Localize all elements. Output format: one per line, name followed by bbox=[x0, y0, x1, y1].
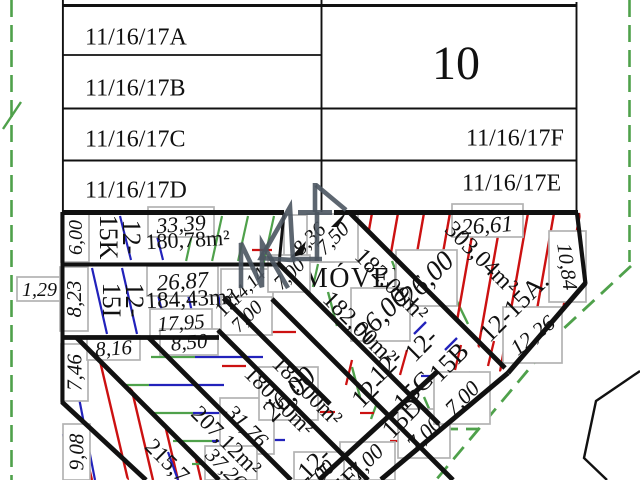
svg-text:1,29: 1,29 bbox=[22, 279, 57, 301]
svg-text:26,87: 26,87 bbox=[156, 267, 211, 296]
svg-text:6,00: 6,00 bbox=[65, 220, 87, 255]
svg-text:9,08: 9,08 bbox=[65, 433, 89, 470]
svg-text:26,61: 26,61 bbox=[460, 211, 513, 240]
svg-text:8,23: 8,23 bbox=[62, 281, 86, 318]
svg-text:15I: 15I bbox=[97, 283, 126, 318]
svg-text:11/16/17B: 11/16/17B bbox=[85, 76, 185, 102]
svg-text:33,39: 33,39 bbox=[154, 210, 206, 238]
svg-text:11/16/17A: 11/16/17A bbox=[85, 25, 187, 51]
svg-text:7,46: 7,46 bbox=[63, 354, 87, 391]
svg-text:11/16/17D: 11/16/17D bbox=[85, 178, 187, 204]
svg-text:15K: 15K bbox=[94, 215, 123, 260]
svg-text:11/16/17C: 11/16/17C bbox=[85, 127, 185, 153]
svg-text:10: 10 bbox=[432, 37, 480, 90]
svg-text:11/16/17E: 11/16/17E bbox=[462, 171, 561, 197]
svg-text:8,16: 8,16 bbox=[94, 335, 133, 362]
svg-text:11/16/17F: 11/16/17F bbox=[466, 126, 564, 152]
svg-text:8,50: 8,50 bbox=[170, 329, 209, 356]
